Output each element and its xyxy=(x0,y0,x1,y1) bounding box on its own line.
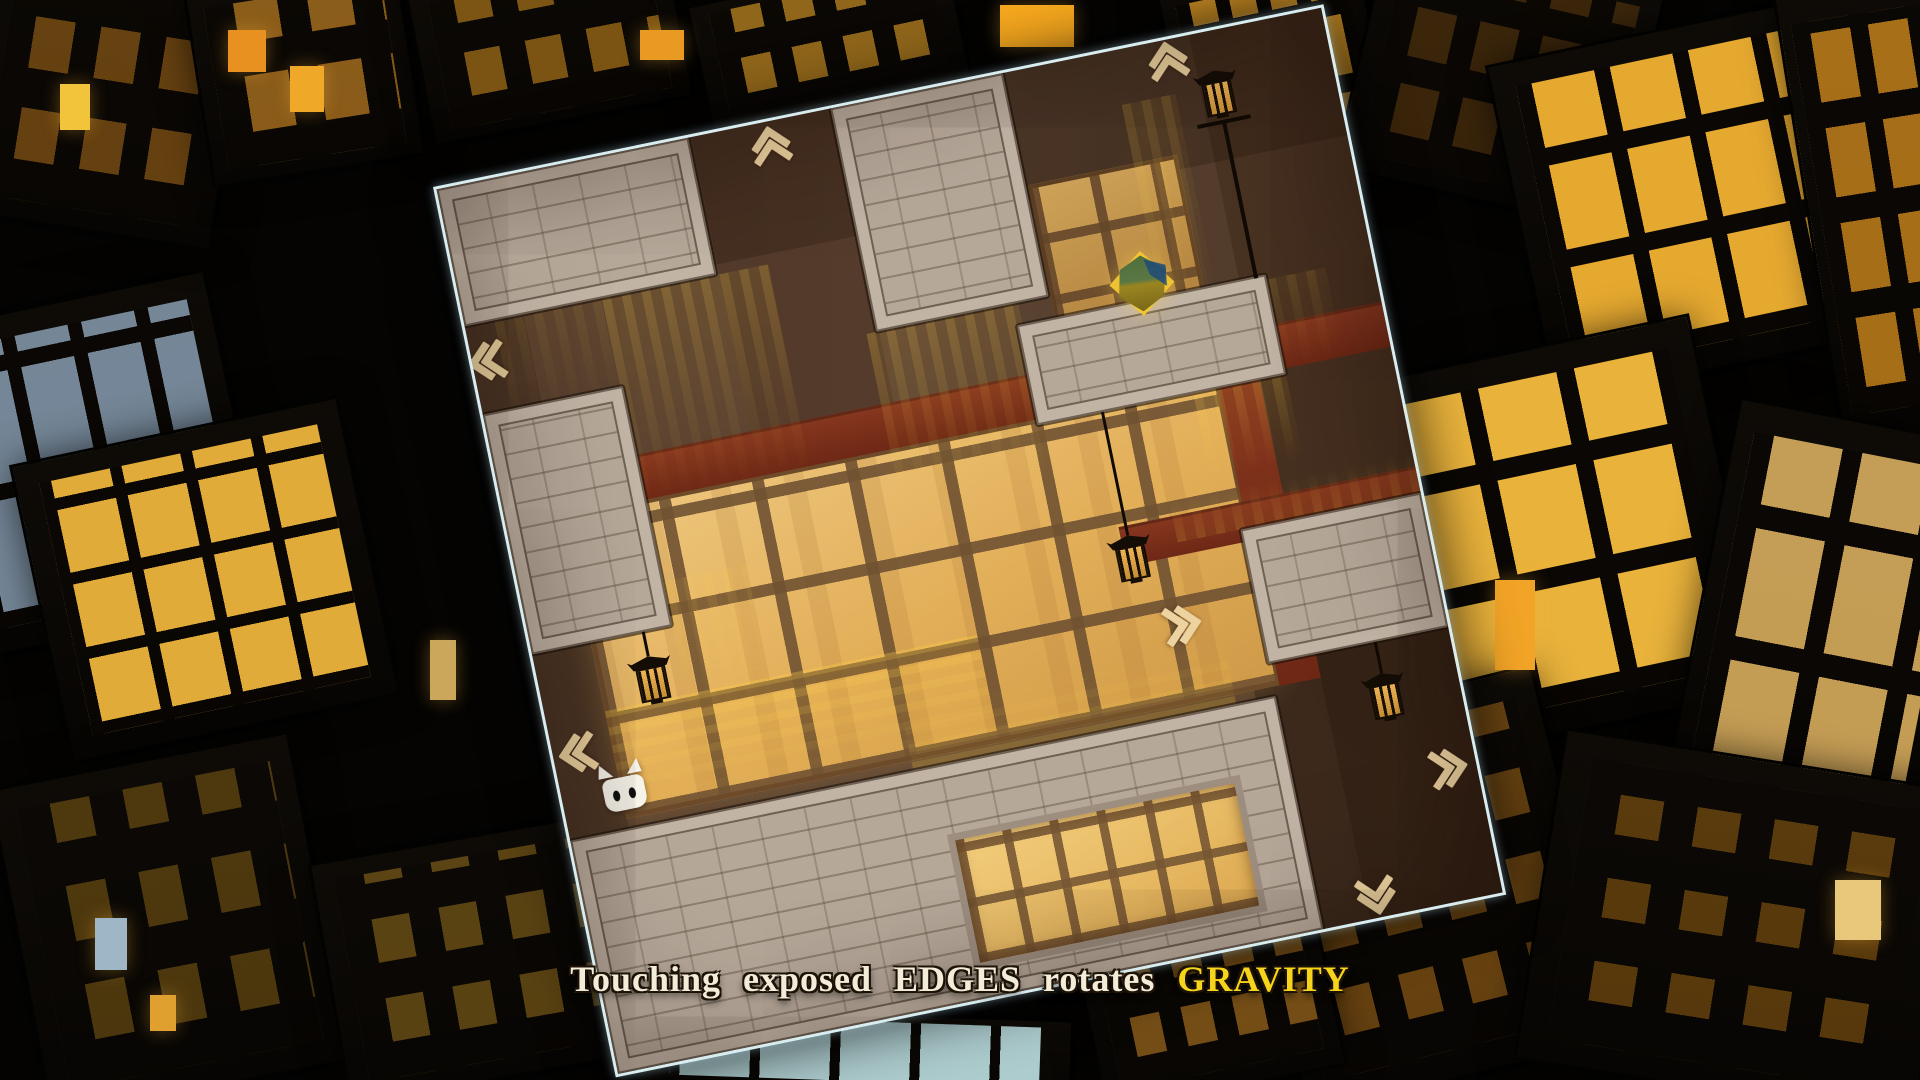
hint-text-segment: Touching exposed xyxy=(570,959,894,999)
building-windows xyxy=(1790,5,1920,416)
hanging-lantern-icon xyxy=(1360,669,1413,725)
gem-front-facet xyxy=(1112,254,1171,313)
lantern-base xyxy=(1384,714,1397,721)
crystal-gem-icon xyxy=(1108,249,1176,317)
hint-text-segment: EDGES xyxy=(894,959,1021,999)
cat-eye-icon xyxy=(628,787,637,799)
lantern-pole xyxy=(1222,121,1258,279)
gravity-chevron-right-icon xyxy=(1424,744,1467,787)
lit-window xyxy=(1000,5,1074,47)
hanging-lantern-icon xyxy=(1106,531,1159,587)
lit-window xyxy=(290,66,324,112)
building-windows xyxy=(16,761,323,1080)
game-board[interactable] xyxy=(433,4,1506,1077)
gravity-chevron-left-icon xyxy=(560,735,603,778)
building-windows xyxy=(39,424,370,735)
game-screen[interactable]: Touching exposed EDGES rotates GRAVITY xyxy=(0,0,1920,1080)
hint-banner: Touching exposed EDGES rotates GRAVITY xyxy=(570,958,1349,1000)
cat-eye-icon xyxy=(612,790,621,802)
lit-window xyxy=(1495,580,1535,670)
lantern-cage xyxy=(635,664,671,703)
brick-platform xyxy=(830,73,1048,332)
gravity-chevron-right-icon xyxy=(1157,601,1200,644)
gravity-chevron-down-icon xyxy=(1358,871,1401,914)
gravity-chevron-left-icon xyxy=(470,343,513,386)
building-windows xyxy=(428,0,672,130)
hint-text-segment: rotates xyxy=(1021,959,1177,999)
cat-ear-icon xyxy=(624,757,642,774)
lit-window xyxy=(1835,880,1881,940)
cat-body xyxy=(601,773,649,814)
gravity-chevron-up-icon xyxy=(1144,43,1187,86)
lit-window xyxy=(430,640,456,700)
gravity-chevron-up-icon xyxy=(747,128,790,171)
lit-window xyxy=(150,995,176,1031)
lit-window xyxy=(640,30,684,60)
lantern-cage xyxy=(1369,681,1405,720)
lantern-cage xyxy=(1201,78,1237,117)
pole-lantern-icon xyxy=(1192,66,1245,122)
lantern-chain xyxy=(1374,642,1383,674)
lantern-cage xyxy=(1115,543,1151,582)
lit-window xyxy=(60,84,90,130)
lit-window xyxy=(95,918,127,970)
hanging-lantern-icon xyxy=(626,652,679,708)
building xyxy=(408,0,692,143)
building-windows xyxy=(334,837,607,1080)
hint-text-segment: GRAVITY xyxy=(1177,959,1349,999)
lit-window xyxy=(228,30,266,72)
